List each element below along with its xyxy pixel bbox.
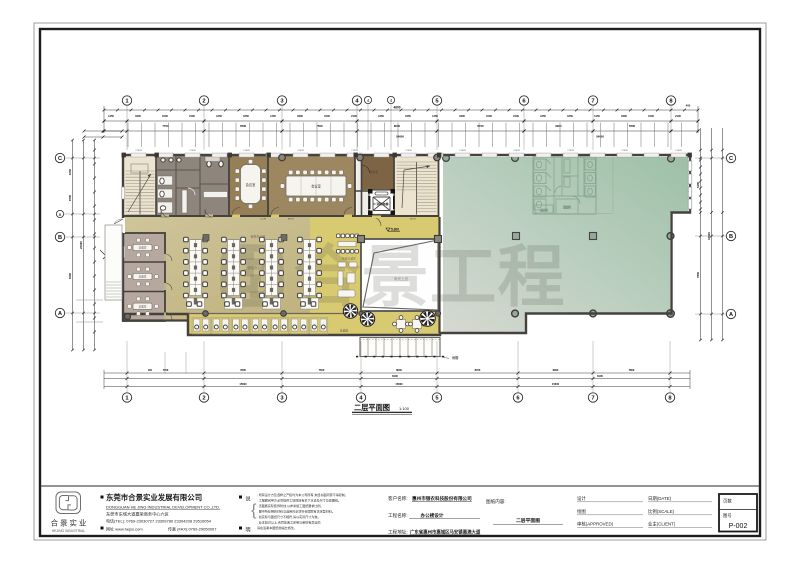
svg-text:5400: 5400 bbox=[696, 182, 700, 188]
svg-text:1650: 1650 bbox=[405, 114, 411, 118]
svg-text:会议室: 会议室 bbox=[246, 182, 256, 187]
svg-text:洽谈室: 洽谈室 bbox=[139, 275, 147, 279]
svg-text:C1828: C1828 bbox=[243, 150, 250, 152]
svg-text:客户名称:: 客户名称: bbox=[388, 495, 408, 502]
svg-text:工程名称:: 工程名称: bbox=[388, 512, 408, 519]
svg-text:A: A bbox=[58, 311, 62, 317]
svg-text:设计: 设计 bbox=[577, 495, 586, 502]
svg-text:办公楼设计: 办公楼设计 bbox=[421, 512, 444, 519]
svg-text:. 如实际与图纸尺寸不相符,请以实际尺寸为准。: . 如实际与图纸尺寸不相符,请以实际尺寸为准。 bbox=[257, 514, 320, 519]
svg-text:7500: 7500 bbox=[316, 124, 323, 128]
svg-text:8100: 8100 bbox=[68, 273, 72, 279]
svg-text:7700: 7700 bbox=[162, 124, 169, 128]
svg-text:. 图中所标明的材料与选用时必须符合国家有关定型材料。: . 图中所标明的材料与选用时必须符合国家有关定型材料。 bbox=[257, 508, 335, 513]
svg-text:54600: 54600 bbox=[396, 134, 404, 138]
svg-text:1800: 1800 bbox=[621, 114, 627, 118]
svg-text:电话(TEL): 0769-23030727 2330978: 电话(TEL): 0769-23030727 23309780 23304208… bbox=[106, 518, 212, 524]
svg-text:. 所有设计方及选样之产权均为本公司所有,未经书面同意不得: . 所有设计方及选样之产权均为本公司所有,未经书面同意不得复制。 bbox=[257, 492, 348, 497]
svg-text:1250: 1250 bbox=[540, 114, 546, 118]
svg-text:300: 300 bbox=[148, 369, 153, 372]
svg-text:15600: 15600 bbox=[707, 232, 711, 240]
svg-text:B: B bbox=[59, 212, 62, 217]
svg-text:C1828: C1828 bbox=[135, 150, 142, 152]
svg-text:洽谈室: 洽谈室 bbox=[139, 304, 147, 308]
svg-text:C1828: C1828 bbox=[189, 150, 196, 152]
svg-text:传真 (FAX):0769-29050007: 传真 (FAX):0769-29050007 bbox=[168, 526, 217, 532]
svg-text:C1828: C1828 bbox=[675, 150, 682, 152]
svg-text:4600: 4600 bbox=[393, 106, 400, 110]
svg-text:7800: 7800 bbox=[240, 368, 246, 372]
svg-text:5.300: 5.300 bbox=[391, 227, 399, 231]
svg-text:P-002: P-002 bbox=[729, 523, 748, 530]
svg-text:请在签署本图纸前提出修改。: 请在签署本图纸前提出修改。 bbox=[257, 525, 297, 530]
svg-text:1450: 1450 bbox=[108, 114, 114, 118]
svg-text:1500: 1500 bbox=[162, 114, 168, 118]
svg-text:7: 7 bbox=[591, 99, 594, 105]
svg-text:C1828: C1828 bbox=[297, 150, 304, 152]
svg-text:8000: 8000 bbox=[394, 124, 401, 128]
svg-text:6900: 6900 bbox=[553, 368, 559, 372]
svg-text:1800: 1800 bbox=[297, 114, 303, 118]
svg-text:清洁间: 清洁间 bbox=[563, 205, 571, 209]
svg-text:东莞市合景实业发展有限公司: 东莞市合景实业发展有限公司 bbox=[106, 493, 202, 502]
svg-text:会议室: 会议室 bbox=[311, 184, 321, 189]
svg-text:21000: 21000 bbox=[79, 241, 83, 249]
svg-text:MOST: MOST bbox=[288, 219, 295, 221]
svg-text:MOST: MOST bbox=[410, 219, 417, 221]
svg-text:. 该图属实际装饰防线,以参考施工图纸要求比例。: . 该图属实际装饰防线,以参考施工图纸要求比例。 bbox=[257, 503, 324, 508]
svg-text:页数: 页数 bbox=[723, 498, 732, 505]
svg-text:工程地址:: 工程地址: bbox=[388, 529, 408, 536]
svg-text:C 消防电梯: C 消防电梯 bbox=[373, 201, 388, 206]
svg-text:洽谈位: 洽谈位 bbox=[340, 329, 349, 333]
svg-text:8700: 8700 bbox=[477, 124, 484, 128]
svg-text:C1828: C1828 bbox=[459, 150, 466, 152]
svg-text:HEJING INDUSTRIAL: HEJING INDUSTRIAL bbox=[52, 529, 86, 533]
svg-text:惠州市银农科技股份有限公司: 惠州市银农科技股份有限公司 bbox=[412, 495, 472, 502]
svg-text:网址 www.hejss.com: 网址 www.hejss.com bbox=[106, 526, 143, 532]
svg-text:15600: 15600 bbox=[395, 382, 403, 386]
svg-text:2: 2 bbox=[202, 396, 205, 402]
svg-text:1450: 1450 bbox=[432, 114, 438, 118]
svg-text:比例(SCALE): 比例(SCALE) bbox=[648, 508, 675, 515]
svg-text:茶水间: 茶水间 bbox=[540, 208, 548, 212]
svg-text:A: A bbox=[729, 312, 733, 318]
svg-text:7800: 7800 bbox=[240, 124, 247, 128]
svg-text:8700: 8700 bbox=[475, 368, 481, 372]
svg-text:雨棚: 雨棚 bbox=[452, 355, 458, 360]
svg-text:广东省惠州市惠城区马安镇惠澳大道: 广东省惠州市惠城区马安镇惠澳大道 bbox=[410, 529, 481, 536]
svg-text:东莞市东城大道嘉荣商务中心六区: 东莞市东城大道嘉荣商务中心六区 bbox=[106, 511, 169, 518]
svg-text:说: 说 bbox=[245, 496, 250, 503]
svg-text:二层平面图: 二层平面图 bbox=[354, 403, 390, 412]
svg-text:8100: 8100 bbox=[597, 374, 603, 378]
svg-text:综合办公区: 综合办公区 bbox=[248, 265, 266, 270]
svg-text:明: 明 bbox=[245, 528, 250, 534]
svg-text:C1828: C1828 bbox=[513, 150, 520, 152]
svg-text:1500: 1500 bbox=[648, 114, 654, 118]
svg-text:B: B bbox=[58, 235, 62, 241]
svg-text:B: B bbox=[729, 234, 733, 240]
svg-text:. 业主如对以上,合同签署之定制与审核有异议的,: . 业主如对以上,合同签署之定制与审核有异议的, bbox=[257, 520, 321, 525]
svg-text:1800: 1800 bbox=[135, 114, 141, 118]
svg-text:1650: 1650 bbox=[567, 114, 573, 118]
svg-text:1:100: 1:100 bbox=[399, 406, 410, 411]
svg-text:8100: 8100 bbox=[392, 374, 398, 378]
svg-text:销售办公区: 销售办公区 bbox=[250, 234, 265, 239]
svg-text:8000: 8000 bbox=[396, 368, 402, 372]
svg-text:二层平面图: 二层平面图 bbox=[516, 517, 540, 524]
svg-text:1250: 1250 bbox=[216, 114, 222, 118]
svg-text:. 工程期间甲方必须提供工地现场有关下水道及尺寸位置图纸。: . 工程期间甲方必须提供工地现场有关下水道及尺寸位置图纸。 bbox=[257, 497, 341, 502]
svg-text:1800: 1800 bbox=[459, 114, 465, 118]
svg-text:1450: 1450 bbox=[270, 114, 276, 118]
svg-text:7800: 7800 bbox=[629, 368, 635, 372]
svg-text:460: 460 bbox=[686, 104, 691, 108]
svg-text:8700: 8700 bbox=[68, 195, 72, 201]
svg-text:图纸内容:: 图纸内容: bbox=[486, 498, 506, 505]
svg-text:程: 程 bbox=[498, 240, 565, 315]
svg-text:DONGGUAN HE JING INDUSTRIAL DE: DONGGUAN HE JING INDUSTRIAL DEVELOPMENT … bbox=[106, 505, 220, 510]
svg-text:1650: 1650 bbox=[243, 114, 249, 118]
svg-text:7800: 7800 bbox=[629, 124, 636, 128]
svg-text:2100: 2100 bbox=[351, 114, 357, 118]
svg-text:业主(CLIENT): 业主(CLIENT) bbox=[648, 521, 676, 527]
svg-text:1650: 1650 bbox=[68, 169, 72, 175]
svg-text:LOUN: LOUN bbox=[260, 219, 266, 221]
svg-text:2: 2 bbox=[202, 99, 205, 105]
svg-text:15600: 15600 bbox=[552, 382, 560, 386]
svg-text:审核(APPROVED): 审核(APPROVED) bbox=[577, 521, 614, 528]
svg-text:2100: 2100 bbox=[675, 114, 681, 118]
svg-text:采光上空: 采光上空 bbox=[394, 276, 409, 281]
svg-text:54600: 54600 bbox=[596, 134, 604, 138]
svg-text:休闲.洽谈区: 休闲.洽谈区 bbox=[342, 257, 356, 261]
svg-text:C: C bbox=[729, 156, 733, 162]
svg-text:合 景 实 业: 合 景 实 业 bbox=[51, 519, 87, 528]
svg-text:1500: 1500 bbox=[324, 114, 330, 118]
svg-text:7500: 7500 bbox=[319, 368, 325, 372]
svg-text:2100: 2100 bbox=[513, 114, 519, 118]
svg-text:C1828: C1828 bbox=[351, 150, 358, 152]
svg-text:7800: 7800 bbox=[696, 272, 700, 278]
svg-text:C: C bbox=[58, 156, 62, 162]
svg-text:绘图: 绘图 bbox=[577, 508, 586, 515]
svg-text:C1828: C1828 bbox=[567, 150, 574, 152]
svg-text:1250: 1250 bbox=[378, 114, 384, 118]
svg-text:C1828: C1828 bbox=[621, 150, 628, 152]
svg-text:休息室: 休息室 bbox=[370, 170, 379, 174]
svg-text:1500: 1500 bbox=[486, 114, 492, 118]
svg-text:15600: 15600 bbox=[239, 382, 247, 386]
svg-text:6900: 6900 bbox=[555, 124, 562, 128]
svg-text:7700: 7700 bbox=[163, 368, 169, 372]
svg-text:洽谈室: 洽谈室 bbox=[139, 246, 147, 250]
svg-text:2100: 2100 bbox=[189, 114, 195, 118]
svg-text:7: 7 bbox=[591, 396, 594, 402]
svg-text:C1828: C1828 bbox=[405, 150, 412, 152]
svg-text:1450: 1450 bbox=[594, 114, 600, 118]
